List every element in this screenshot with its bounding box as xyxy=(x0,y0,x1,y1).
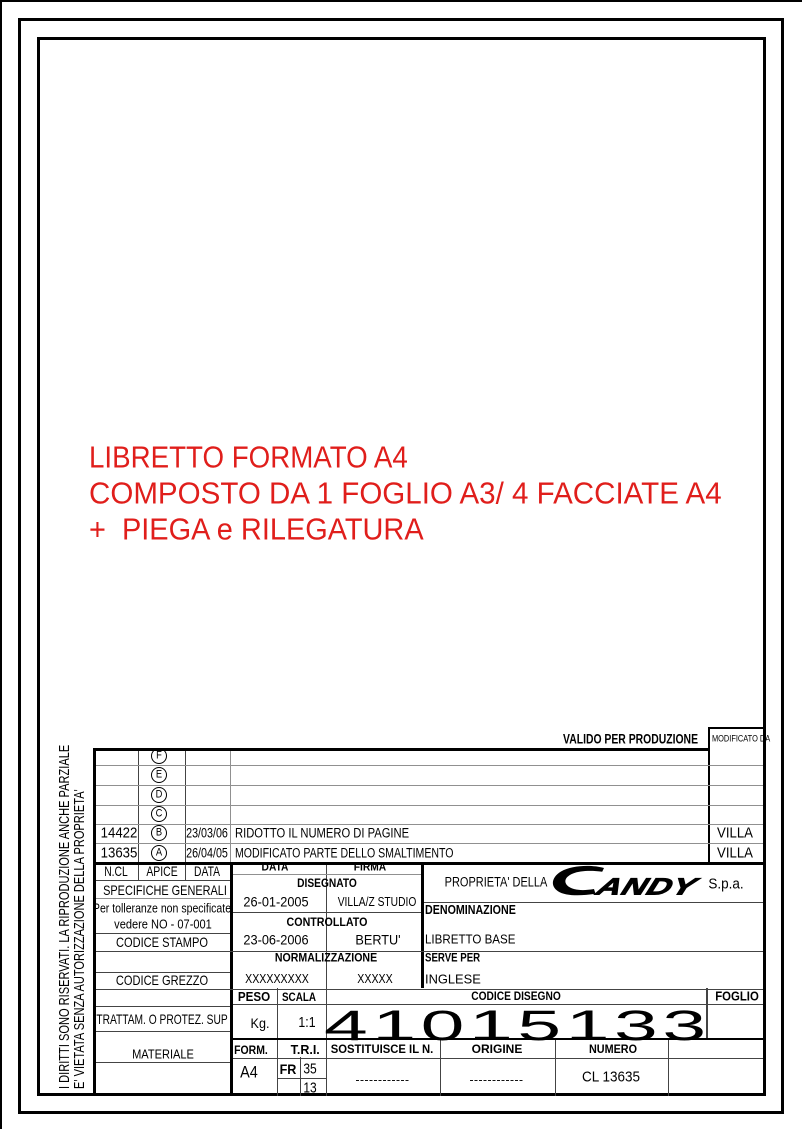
svg-text:ANDY: ANDY xyxy=(592,874,703,900)
